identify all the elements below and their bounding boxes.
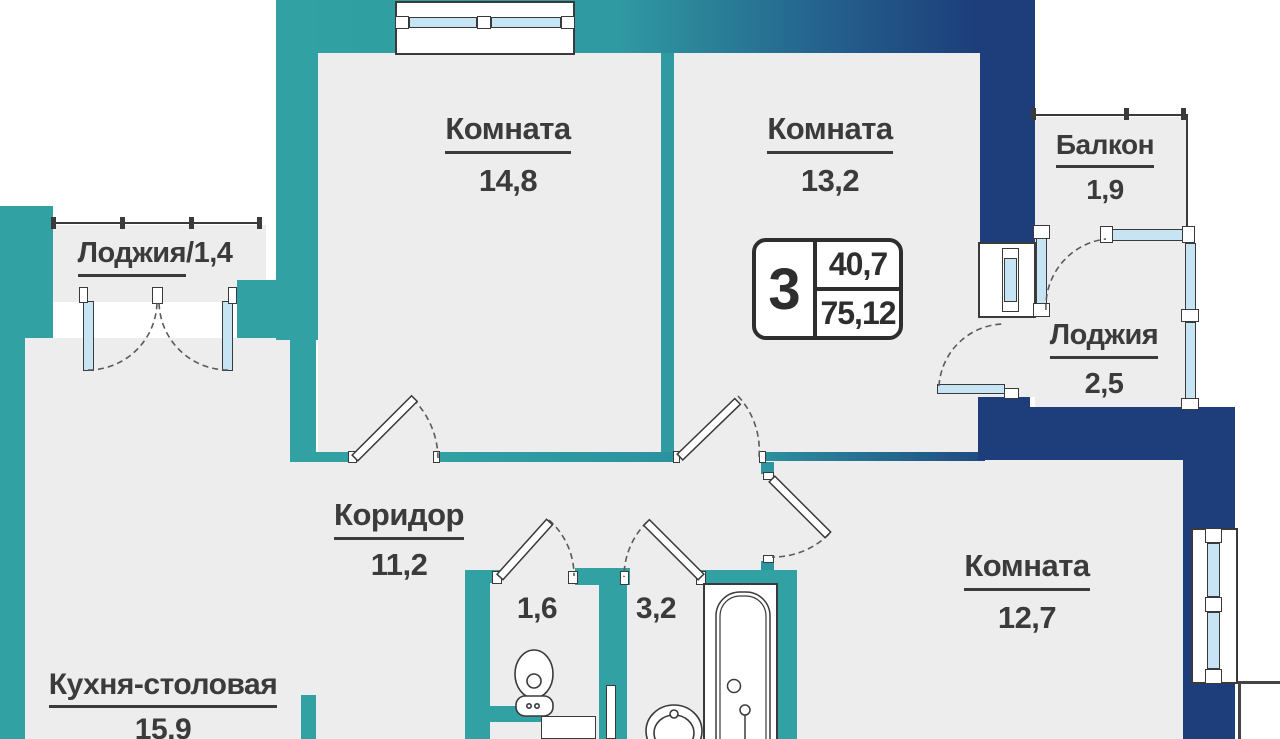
wall-wc-bottom <box>470 706 543 722</box>
window-mullion <box>477 16 491 29</box>
label-bath: 3,2 <box>606 592 706 626</box>
door-jamb <box>568 571 578 584</box>
label-room-13-2: Комната 13,2 <box>715 111 945 199</box>
wall-top <box>276 0 1035 53</box>
label-room-14-8: Комната 14,8 <box>393 111 623 199</box>
window-pane <box>491 17 561 28</box>
label-wc: 1,6 <box>487 592 587 626</box>
dimension-tick <box>189 217 194 229</box>
wall-navy-step <box>978 397 1030 460</box>
door-jamb <box>152 287 163 304</box>
rooms-count: 3 <box>756 242 817 336</box>
door-jamb <box>673 451 680 463</box>
room-area: 15,9 <box>28 713 298 739</box>
room-area: /1,4 <box>186 237 232 269</box>
window-pane <box>1207 612 1220 669</box>
wall-outer-left <box>0 332 25 739</box>
window-mullion <box>1205 528 1222 543</box>
window-mullion <box>1205 669 1222 684</box>
total-area: 75,12 <box>817 291 899 336</box>
room-area: 12,7 <box>912 600 1142 636</box>
bath-door-strip <box>606 685 616 739</box>
window-mullion <box>1033 225 1050 239</box>
door-jamb <box>433 451 440 463</box>
door-opening-room-13-2 <box>679 452 760 462</box>
room-area: 14,8 <box>393 163 623 199</box>
window-mullion <box>1182 226 1195 243</box>
balcony-railing-top <box>1035 114 1188 116</box>
room-area: 13,2 <box>715 163 945 199</box>
door-jamb <box>696 571 706 585</box>
wc-bottom-door <box>541 716 596 739</box>
room-name: Комната <box>964 548 1089 591</box>
dimension-tick <box>51 217 56 229</box>
door-jamb <box>759 451 766 463</box>
window-mullion <box>1100 226 1113 243</box>
loggia-small-door-leaf <box>222 301 233 371</box>
door-jamb <box>348 451 357 463</box>
room-area: 2,5 <box>1014 368 1194 401</box>
room-name: Лоджия <box>1050 319 1158 359</box>
label-room-12-7: Комната 12,7 <box>912 548 1142 636</box>
dimension-tick <box>257 217 262 229</box>
room-area: 11,2 <box>284 547 514 583</box>
dimension-tick <box>1031 108 1036 120</box>
wall-rooms-divider <box>661 53 674 452</box>
areas: 40,7 75,12 <box>817 242 899 336</box>
room-area: 3,2 <box>636 592 676 625</box>
door-jamb <box>79 287 88 303</box>
dimension-tick <box>120 217 125 229</box>
room-name: Коридор <box>334 497 464 540</box>
loggia-top-window <box>1108 229 1188 241</box>
wall-corridor-b <box>440 452 673 462</box>
living-area: 40,7 <box>817 242 899 291</box>
window-pane <box>1207 543 1220 597</box>
apartment-spec-badge: 3 40,7 75,12 <box>752 238 903 340</box>
label-kitchen: Кухня-столовая 15,9 <box>28 668 298 739</box>
room-name: Балкон <box>1056 129 1154 168</box>
wall-bath-right <box>775 570 797 739</box>
balcony-side-window <box>1036 230 1047 311</box>
room-name: Комната <box>445 111 570 154</box>
dimension-line-loggia-small <box>53 222 262 224</box>
window-mullion <box>561 16 575 29</box>
door-jamb <box>228 287 237 304</box>
wall-kitchen-stub <box>301 695 316 739</box>
apartment-floor-plan: Комната 14,8 Комната 13,2 Комната 12,7 К… <box>0 0 1280 739</box>
room-name: Кухня-столовая <box>49 668 277 708</box>
door-jamb <box>620 571 629 585</box>
wall-corridor-c <box>766 452 985 461</box>
window-mullion <box>1033 303 1050 317</box>
loggia-right-glazing <box>1185 243 1196 311</box>
balcony-door-glass <box>1004 258 1017 302</box>
label-corridor: Коридор 11,2 <box>284 497 514 583</box>
loggia-door-leaf <box>937 384 1005 394</box>
wall-corridor-a <box>316 452 348 462</box>
window-mullion <box>395 16 409 29</box>
door-opening-room-14-8 <box>357 452 433 462</box>
wall-kitchen-corridor <box>290 335 316 462</box>
label-loggia-large: Лоджия 2,5 <box>1014 319 1194 401</box>
loggia-small-door-leaf <box>83 301 94 371</box>
room-area: 1,9 <box>1015 174 1195 206</box>
dimension-tick <box>1124 108 1129 120</box>
room-area: 1,6 <box>517 592 557 625</box>
window-mullion <box>1205 597 1222 612</box>
room-name: Лоджия <box>78 237 186 277</box>
door-jamb <box>763 472 774 480</box>
wall-loggia-small-right-block <box>237 280 318 338</box>
room-name: Комната <box>767 111 892 154</box>
door-jamb <box>763 555 774 563</box>
label-loggia-small: Лоджия/1,4 <box>45 237 265 277</box>
dimension-tick <box>1181 108 1186 120</box>
neighbour-balcony <box>1238 681 1280 739</box>
window-pane <box>409 17 477 28</box>
label-balcony: Балкон 1,9 <box>1015 129 1195 206</box>
